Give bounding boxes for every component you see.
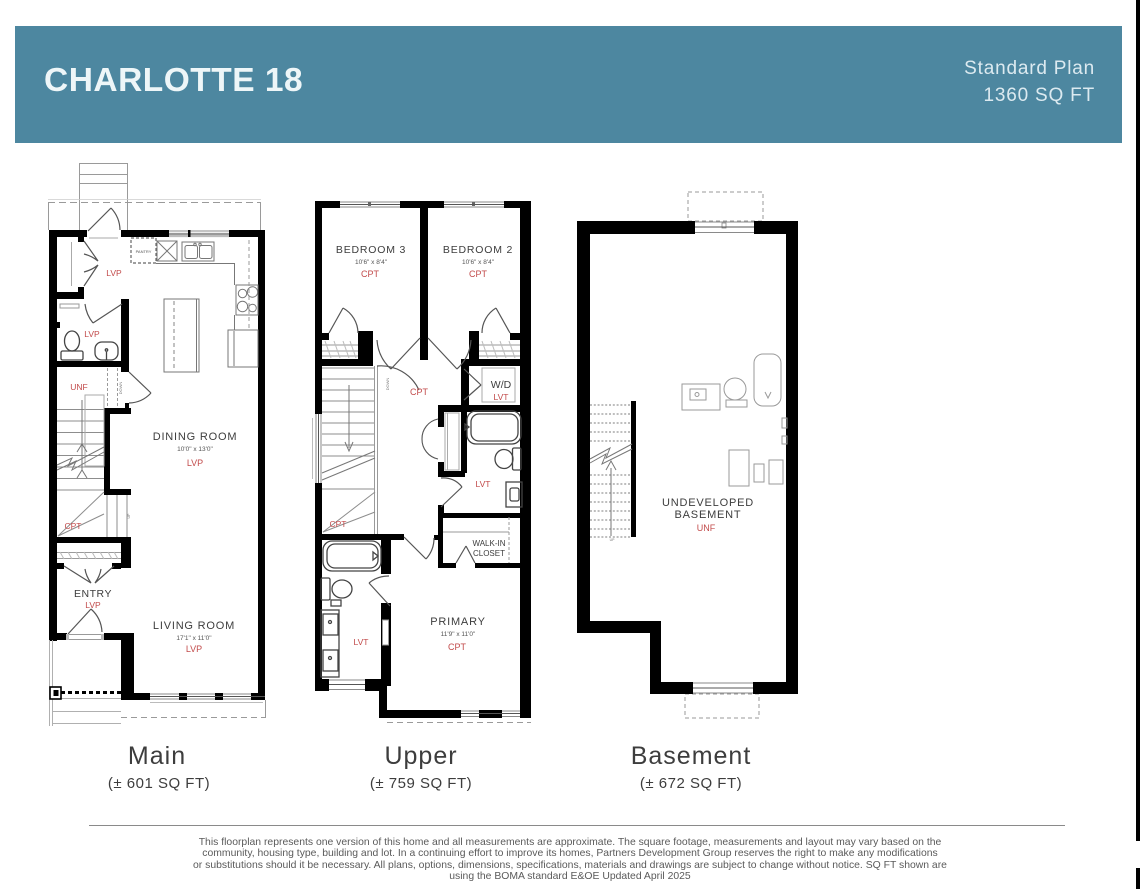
- svg-text:DINING ROOM: DINING ROOM: [153, 431, 238, 443]
- svg-text:17'1" x 11'0": 17'1" x 11'0": [176, 635, 212, 642]
- svg-text:LIVING ROOM: LIVING ROOM: [153, 620, 235, 632]
- svg-text:CPT: CPT: [330, 519, 347, 529]
- svg-text:ENTRY: ENTRY: [74, 588, 112, 600]
- svg-text:PRIMARY: PRIMARY: [430, 616, 486, 628]
- svg-text:WALK-IN: WALK-IN: [472, 539, 505, 548]
- svg-text:BEDROOM 2: BEDROOM 2: [443, 244, 513, 256]
- svg-text:UNDEVELOPED: UNDEVELOPED: [662, 497, 754, 509]
- svg-text:UNF: UNF: [70, 382, 87, 392]
- svg-text:LVP: LVP: [187, 458, 203, 468]
- svg-text:CPT: CPT: [65, 521, 82, 531]
- svg-text:CPT: CPT: [361, 269, 380, 279]
- svg-text:W/D: W/D: [491, 379, 512, 391]
- svg-text:10'0" x 13'0": 10'0" x 13'0": [177, 446, 213, 453]
- svg-text:LVT: LVT: [494, 392, 509, 402]
- svg-text:LVP: LVP: [85, 600, 101, 610]
- svg-text:LVT: LVT: [476, 479, 491, 489]
- svg-text:UP: UP: [127, 513, 131, 519]
- svg-text:10'6" x 8'4": 10'6" x 8'4": [462, 259, 495, 266]
- svg-text:PANTRY: PANTRY: [136, 249, 152, 254]
- svg-text:10'6" x 8'4": 10'6" x 8'4": [355, 259, 388, 266]
- svg-text:CPT: CPT: [469, 269, 488, 279]
- svg-text:UP: UP: [610, 538, 616, 542]
- svg-text:CLOSET: CLOSET: [473, 549, 505, 558]
- svg-text:LVP: LVP: [106, 268, 122, 278]
- svg-text:LVP: LVP: [84, 329, 100, 339]
- svg-text:DOWN: DOWN: [385, 378, 390, 391]
- svg-text:BASEMENT: BASEMENT: [675, 509, 742, 521]
- svg-text:LVP: LVP: [186, 644, 202, 654]
- svg-text:LVT: LVT: [354, 637, 369, 647]
- svg-text:DOWN: DOWN: [118, 382, 123, 395]
- svg-text:BEDROOM 3: BEDROOM 3: [336, 244, 406, 256]
- svg-text:11'9" x 11'0": 11'9" x 11'0": [441, 631, 476, 638]
- svg-text:UNF: UNF: [697, 523, 716, 533]
- svg-text:CPT: CPT: [410, 387, 429, 397]
- svg-text:CPT: CPT: [448, 642, 467, 652]
